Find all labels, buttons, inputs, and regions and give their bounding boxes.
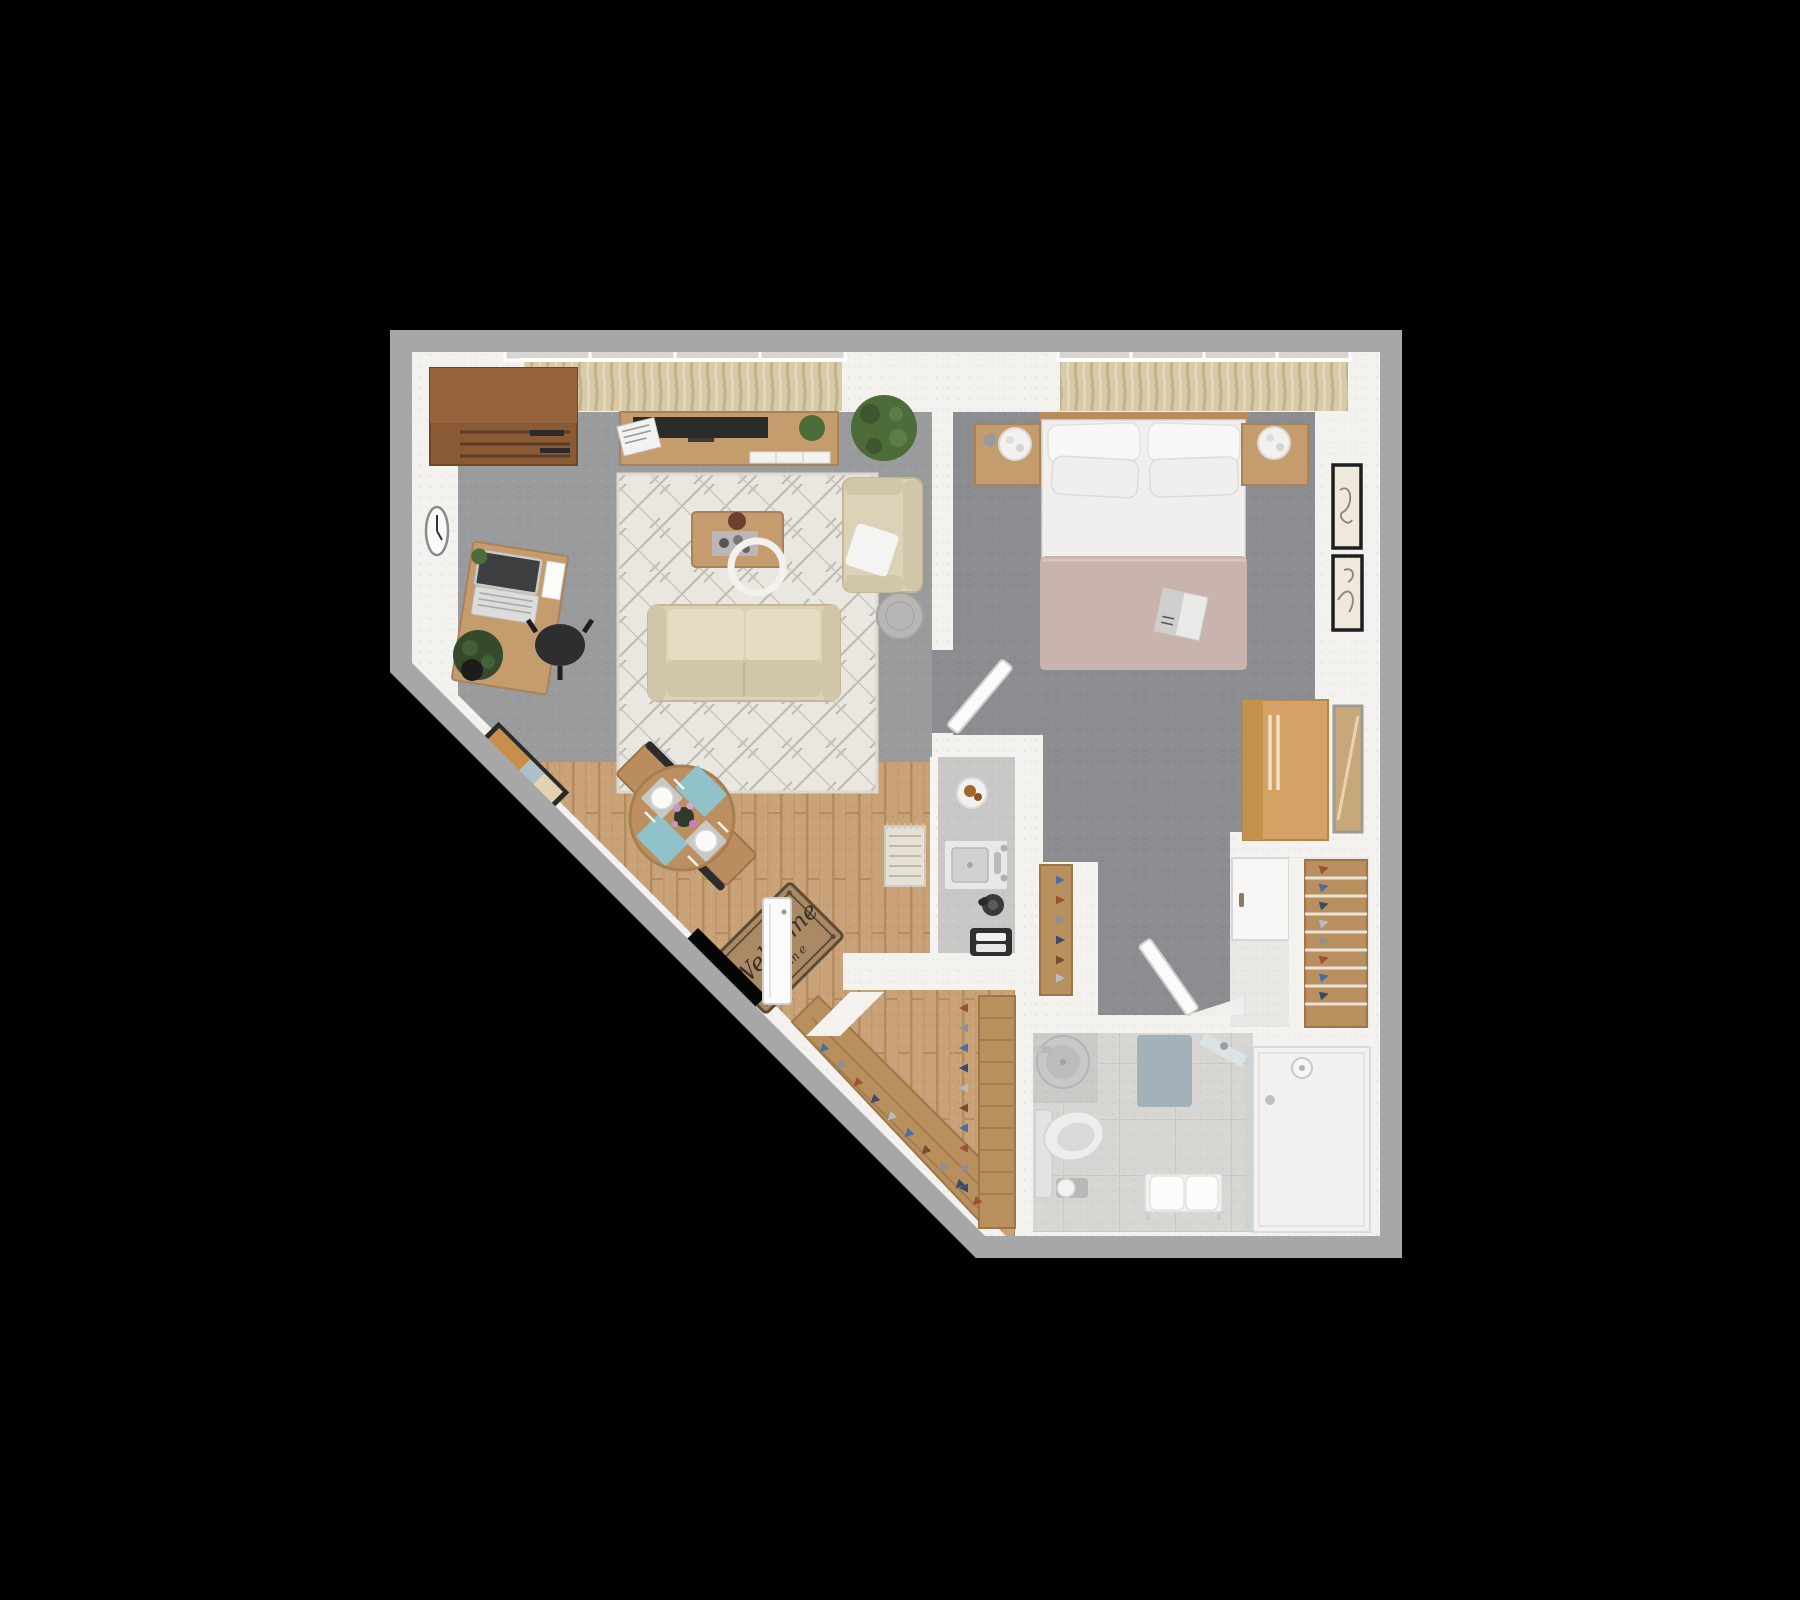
shower-door-handle [1220, 1042, 1228, 1050]
corner-cabinet [430, 368, 577, 465]
tv-console [617, 412, 838, 465]
wall-art-2 [1333, 556, 1362, 630]
floor-plan-stage: Welcome home [0, 0, 1800, 1600]
kitchen-sink [944, 840, 1008, 890]
round-side-table [877, 593, 923, 639]
armchair [843, 478, 922, 592]
toaster [970, 928, 1012, 956]
bed [1040, 412, 1248, 670]
nightstand-right [1242, 424, 1308, 485]
faucet [994, 852, 1001, 874]
dining-table [630, 765, 734, 870]
bath-mat [1137, 1035, 1192, 1107]
coffee-table [692, 512, 783, 567]
floor-plant-large [851, 395, 917, 461]
shower-drain [1265, 1095, 1275, 1105]
wall-art-1 [1333, 465, 1361, 548]
wall-clock [426, 507, 448, 555]
wardrobe [1243, 700, 1328, 840]
wall-art-frames [1333, 465, 1362, 630]
nook-shoe-rack [1305, 860, 1367, 1027]
duvet [1040, 556, 1247, 670]
runner-rug [885, 823, 925, 886]
cabinet-handle [1239, 893, 1244, 907]
nightstand-left [975, 424, 1040, 485]
floor-plan-svg: Welcome home [0, 0, 1800, 1600]
bedroom-curtain-rod [1056, 358, 1352, 362]
nook-divider [1289, 858, 1305, 1027]
bedroom-curtains [1060, 361, 1348, 411]
toilet-paper-stand [1056, 1178, 1088, 1198]
decor-bowl [728, 512, 746, 530]
bed-magazine [1154, 588, 1208, 641]
console-drawers [750, 452, 830, 463]
apartment: Welcome home [390, 330, 1402, 1258]
sofa [648, 605, 840, 701]
leaning-mirror [1334, 706, 1362, 832]
shower-tray [1253, 1047, 1370, 1232]
console-plant [799, 415, 825, 441]
vase [983, 433, 997, 447]
entry-door [763, 898, 791, 1004]
living-curtain-rod [520, 358, 846, 362]
shower-glass [1245, 1047, 1253, 1232]
hall-shoe-cabinet [1040, 865, 1072, 995]
